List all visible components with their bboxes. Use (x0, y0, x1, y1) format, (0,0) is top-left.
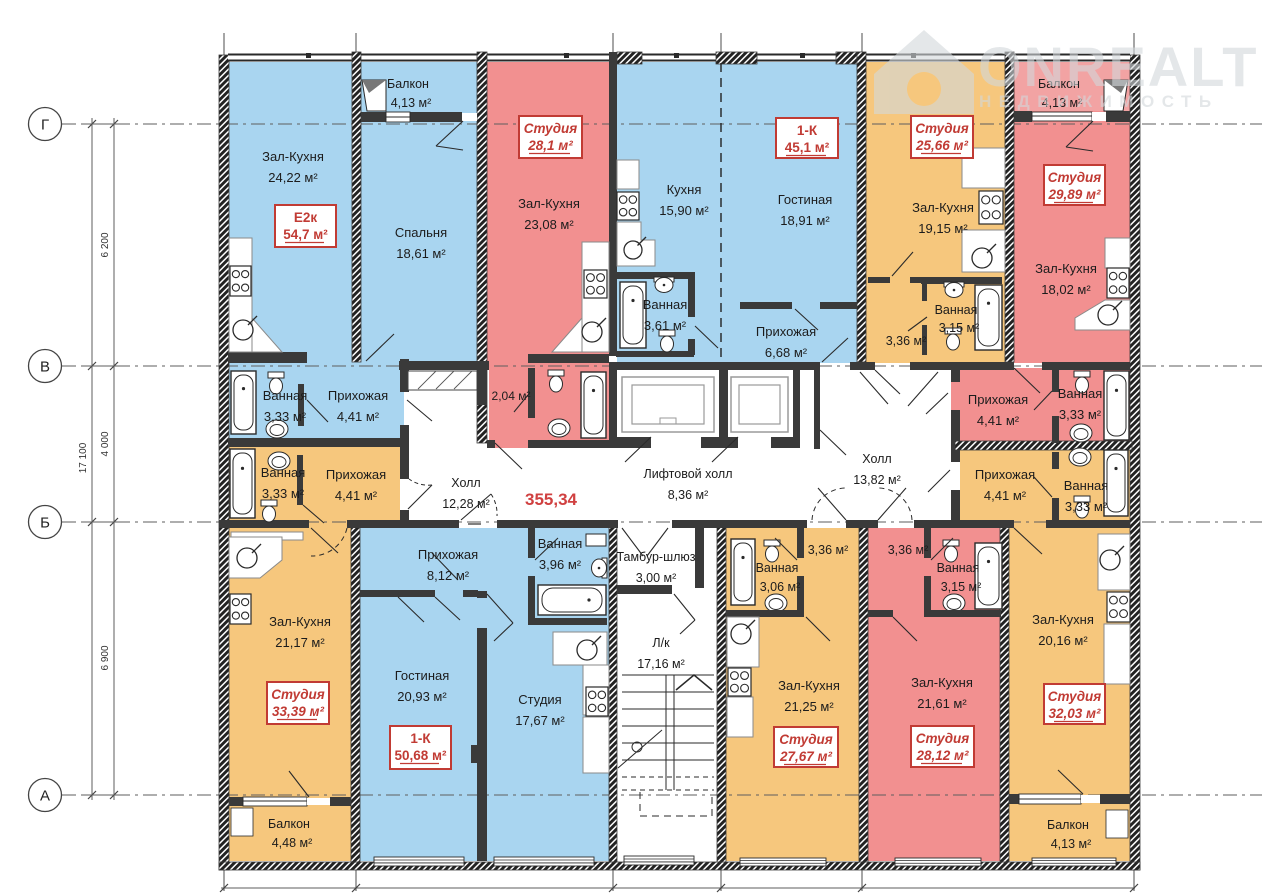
svg-text:Ванная: Ванная (643, 297, 688, 312)
svg-text:3,15 м²: 3,15 м² (941, 580, 982, 594)
svg-text:3,33 м²: 3,33 м² (1065, 499, 1108, 514)
svg-text:54,7 м²: 54,7 м² (283, 227, 328, 242)
svg-text:Кухня: Кухня (667, 182, 702, 197)
svg-text:Холл: Холл (862, 452, 891, 466)
svg-text:Ванная: Ванная (263, 388, 308, 403)
svg-text:17,67 м²: 17,67 м² (515, 713, 565, 728)
svg-text:3,36 м²: 3,36 м² (888, 543, 929, 557)
svg-text:33,39 м²: 33,39 м² (272, 704, 325, 719)
svg-text:Ванная: Ванная (261, 465, 306, 480)
svg-text:Б: Б (40, 515, 50, 532)
svg-text:Лифтовой холл: Лифтовой холл (643, 467, 732, 481)
svg-text:1-К: 1-К (797, 123, 818, 138)
svg-text:17 100: 17 100 (78, 442, 89, 473)
svg-text:3,33 м²: 3,33 м² (1059, 407, 1102, 422)
svg-text:4 000: 4 000 (100, 431, 111, 456)
svg-text:ONREALT: ONREALT (978, 35, 1259, 98)
svg-text:18,61 м²: 18,61 м² (396, 246, 446, 261)
svg-text:4,41 м²: 4,41 м² (335, 488, 378, 503)
svg-text:3,61 м²: 3,61 м² (644, 318, 687, 333)
svg-text:Холл: Холл (451, 476, 480, 490)
svg-text:Студия: Студия (518, 692, 561, 707)
svg-text:Зал-Кухня: Зал-Кухня (269, 614, 331, 629)
svg-text:3,33 м²: 3,33 м² (262, 486, 305, 501)
svg-text:Зал-Кухня: Зал-Кухня (262, 149, 324, 164)
svg-text:Спальня: Спальня (395, 225, 447, 240)
svg-text:2,04 м²: 2,04 м² (492, 389, 531, 403)
svg-text:45,1 м²: 45,1 м² (785, 140, 830, 155)
svg-text:Зал-Кухня: Зал-Кухня (912, 200, 974, 215)
svg-text:3,06 м²: 3,06 м² (760, 580, 801, 594)
svg-text:24,22 м²: 24,22 м² (268, 170, 318, 185)
svg-text:А: А (40, 788, 50, 805)
svg-text:Балкон: Балкон (387, 77, 429, 91)
svg-text:32,03 м²: 32,03 м² (1048, 706, 1101, 721)
svg-text:Зал-Кухня: Зал-Кухня (778, 678, 840, 693)
svg-text:Ванная: Ванная (756, 561, 799, 575)
svg-text:20,93 м²: 20,93 м² (397, 689, 447, 704)
svg-text:Ванная: Ванная (937, 561, 980, 575)
svg-text:3,36 м²: 3,36 м² (886, 334, 927, 348)
svg-text:НЕДВИЖИМОСТЬ: НЕДВИЖИМОСТЬ (979, 92, 1219, 111)
svg-text:Прихожая: Прихожая (756, 324, 816, 339)
svg-text:8,12 м²: 8,12 м² (427, 568, 470, 583)
svg-text:Ванная: Ванная (538, 536, 583, 551)
svg-text:Студия: Студия (524, 121, 578, 136)
svg-text:Зал-Кухня: Зал-Кухня (911, 675, 973, 690)
svg-text:Л/к: Л/к (652, 636, 670, 650)
svg-text:Прихожая: Прихожая (975, 467, 1035, 482)
svg-text:18,02 м²: 18,02 м² (1041, 282, 1091, 297)
svg-text:Зал-Кухня: Зал-Кухня (1035, 261, 1097, 276)
svg-text:4,41 м²: 4,41 м² (984, 488, 1027, 503)
svg-text:3,36 м²: 3,36 м² (808, 543, 849, 557)
svg-text:Балкон: Балкон (268, 817, 310, 831)
svg-text:4,13 м²: 4,13 м² (1051, 837, 1092, 851)
svg-text:Зал-Кухня: Зал-Кухня (518, 196, 580, 211)
svg-text:4,13 м²: 4,13 м² (391, 96, 432, 110)
svg-text:Е2к: Е2к (294, 210, 318, 225)
svg-text:3,33 м²: 3,33 м² (264, 409, 307, 424)
svg-text:Студия: Студия (916, 731, 970, 746)
svg-text:3,00 м²: 3,00 м² (636, 571, 677, 585)
svg-text:Зал-Кухня: Зал-Кухня (1032, 612, 1094, 627)
svg-text:20,16 м²: 20,16 м² (1038, 633, 1088, 648)
svg-text:21,17 м²: 21,17 м² (275, 635, 325, 650)
svg-text:6 200: 6 200 (100, 232, 111, 257)
svg-text:4,48 м²: 4,48 м² (272, 836, 313, 850)
svg-text:29,89 м²: 29,89 м² (1047, 187, 1101, 202)
svg-text:3,96 м²: 3,96 м² (539, 557, 582, 572)
svg-text:28,1 м²: 28,1 м² (527, 138, 573, 153)
svg-text:1-К: 1-К (410, 731, 431, 746)
svg-text:23,08 м²: 23,08 м² (524, 217, 574, 232)
svg-text:13,82 м²: 13,82 м² (853, 473, 901, 487)
svg-text:28,12 м²: 28,12 м² (915, 748, 969, 763)
svg-text:21,25 м²: 21,25 м² (784, 699, 834, 714)
svg-text:25,66 м²: 25,66 м² (915, 138, 969, 153)
svg-text:21,61 м²: 21,61 м² (917, 696, 967, 711)
svg-text:Прихожая: Прихожая (418, 547, 478, 562)
svg-text:12,28 м²: 12,28 м² (442, 497, 490, 511)
svg-text:Прихожая: Прихожая (968, 392, 1028, 407)
svg-text:Прихожая: Прихожая (326, 467, 386, 482)
svg-text:15,90 м²: 15,90 м² (659, 203, 709, 218)
svg-text:Студия: Студия (271, 687, 325, 702)
svg-text:Гостиная: Гостиная (395, 668, 450, 683)
svg-text:3,15 м²: 3,15 м² (939, 321, 980, 335)
svg-text:Студия: Студия (1048, 170, 1102, 185)
svg-text:6 900: 6 900 (100, 645, 111, 670)
svg-text:27,67 м²: 27,67 м² (779, 749, 833, 764)
svg-text:8,36 м²: 8,36 м² (668, 488, 709, 502)
svg-text:19,15 м²: 19,15 м² (918, 221, 968, 236)
svg-text:В: В (40, 359, 50, 376)
svg-text:Тамбур-шлюз: Тамбур-шлюз (616, 550, 695, 564)
svg-text:18,91 м²: 18,91 м² (780, 213, 830, 228)
svg-text:17,16 м²: 17,16 м² (637, 657, 685, 671)
svg-text:Ванная: Ванная (1058, 386, 1103, 401)
svg-text:Г: Г (41, 117, 49, 134)
svg-text:Прихожая: Прихожая (328, 388, 388, 403)
svg-text:4,41 м²: 4,41 м² (337, 409, 380, 424)
svg-text:Студия: Студия (915, 121, 969, 136)
svg-text:4,41 м²: 4,41 м² (977, 413, 1020, 428)
svg-text:6,68 м²: 6,68 м² (765, 345, 808, 360)
svg-text:50,68 м²: 50,68 м² (394, 748, 447, 763)
svg-text:Ванная: Ванная (1064, 478, 1109, 493)
svg-text:Студия: Студия (1048, 689, 1102, 704)
svg-text:Ванная: Ванная (935, 303, 978, 317)
svg-text:Студия: Студия (779, 732, 833, 747)
svg-text:355,34: 355,34 (525, 490, 578, 509)
svg-text:Гостиная: Гостиная (778, 192, 833, 207)
svg-text:Балкон: Балкон (1047, 818, 1089, 832)
